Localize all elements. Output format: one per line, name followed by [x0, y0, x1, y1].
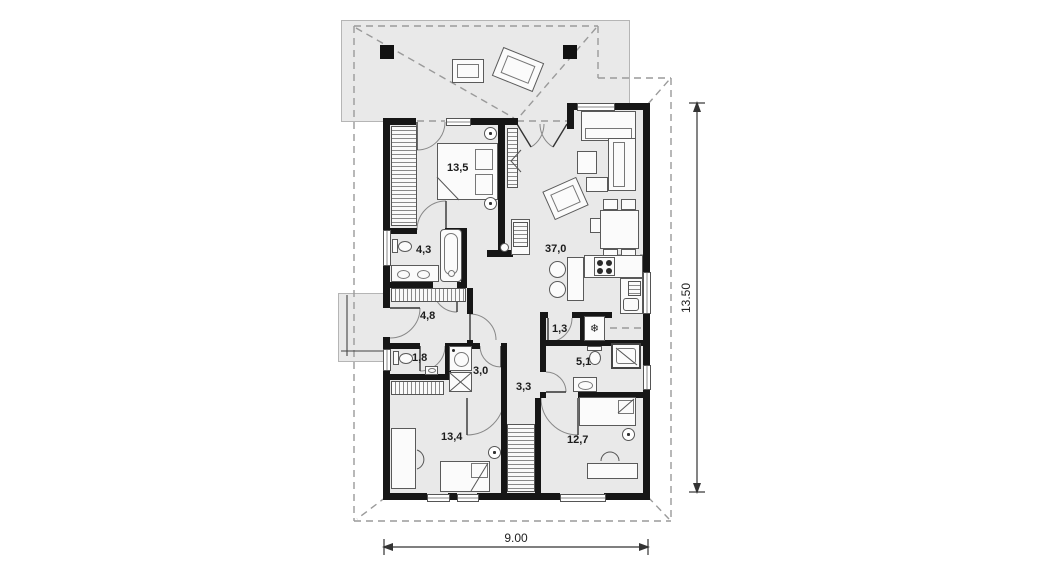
dining-chair: [590, 218, 601, 233]
wall: [643, 312, 650, 365]
floor-drain: [449, 372, 472, 392]
bathtub: [440, 229, 462, 282]
room-label-bedroom-2: 13,4: [441, 431, 462, 443]
wardrobe: [507, 424, 535, 492]
dining-table: [600, 210, 639, 249]
terrace-post: [563, 45, 577, 59]
dimension-height-label: 13.50: [679, 276, 693, 320]
radiator: [507, 128, 518, 188]
bed: [440, 461, 490, 492]
wall: [498, 118, 505, 250]
room-label-inner-hall: 3,3: [516, 381, 531, 393]
kitchen-sink: [623, 298, 639, 311]
wardrobe: [391, 288, 466, 302]
wall: [567, 103, 577, 110]
window: [643, 365, 651, 390]
bed: [579, 397, 636, 426]
wall: [643, 388, 650, 500]
wall: [469, 118, 518, 125]
toilet: [398, 241, 412, 252]
wc-sink: [425, 366, 438, 375]
sofa: [581, 111, 636, 141]
wall: [383, 369, 390, 500]
ceiling-light-icon: [622, 428, 635, 441]
ceiling-light-icon: [484, 127, 497, 140]
wall: [467, 288, 473, 314]
wall: [643, 103, 650, 272]
room-label-bathroom-2: 5,1: [576, 356, 591, 368]
coffee-table: [577, 151, 597, 174]
washing-machine: [449, 346, 472, 371]
wall: [383, 264, 390, 308]
toilet: [399, 353, 413, 364]
ceiling-light-icon: [484, 197, 497, 210]
wardrobe: [391, 381, 444, 395]
wall: [390, 228, 417, 234]
stove: [500, 243, 509, 252]
window: [457, 494, 479, 502]
room-label-utility: 3,0: [473, 365, 488, 377]
room-label-living-kitchen: 37,0: [545, 243, 566, 255]
window: [383, 230, 391, 266]
terrace-table: [452, 59, 484, 83]
room-label-pantry: 1,3: [552, 323, 567, 335]
window: [383, 349, 391, 371]
room-label-bathroom-main: 4,3: [416, 244, 431, 256]
room-label-entrance-hall: 4,8: [420, 310, 435, 322]
wall: [383, 337, 390, 349]
wall: [540, 312, 548, 318]
dining-chair: [603, 199, 618, 210]
room-label-bedroom-3: 12,7: [567, 434, 588, 446]
wall: [390, 343, 420, 349]
floor-plan-canvas: ❄: [0, 0, 1044, 580]
wall: [604, 493, 650, 500]
kitchen-island: [567, 257, 584, 301]
ceiling-light-icon: [488, 446, 501, 459]
double-vanity: [391, 265, 439, 282]
chimney-flue: [513, 222, 528, 247]
window: [446, 118, 471, 126]
terrace-post: [380, 45, 394, 59]
desk: [587, 463, 638, 479]
room-label-bedroom-main: 13,5: [447, 162, 468, 174]
bathroom-sink: [573, 377, 597, 392]
shower: [611, 343, 641, 369]
cooktop: [594, 257, 615, 276]
dining-chair: [621, 199, 636, 210]
window: [427, 494, 450, 502]
stove-base: [487, 250, 513, 257]
bar-stool: [549, 281, 566, 298]
sofa-corner: [608, 138, 636, 191]
coffee-table: [586, 177, 608, 192]
desk: [391, 428, 416, 489]
wall: [535, 398, 541, 494]
wardrobe: [391, 126, 417, 226]
dishwasher: [628, 281, 641, 296]
fridge: ❄: [584, 316, 605, 341]
wall: [383, 118, 390, 230]
snowflake-icon: ❄: [590, 323, 599, 335]
wall: [501, 343, 507, 398]
window: [560, 494, 606, 502]
window: [643, 272, 651, 314]
window: [577, 103, 615, 111]
wall: [477, 493, 560, 500]
bar-stool: [549, 261, 566, 278]
dimension-width-label: 9.00: [494, 531, 538, 545]
room-label-wc: 1,8: [412, 352, 427, 364]
